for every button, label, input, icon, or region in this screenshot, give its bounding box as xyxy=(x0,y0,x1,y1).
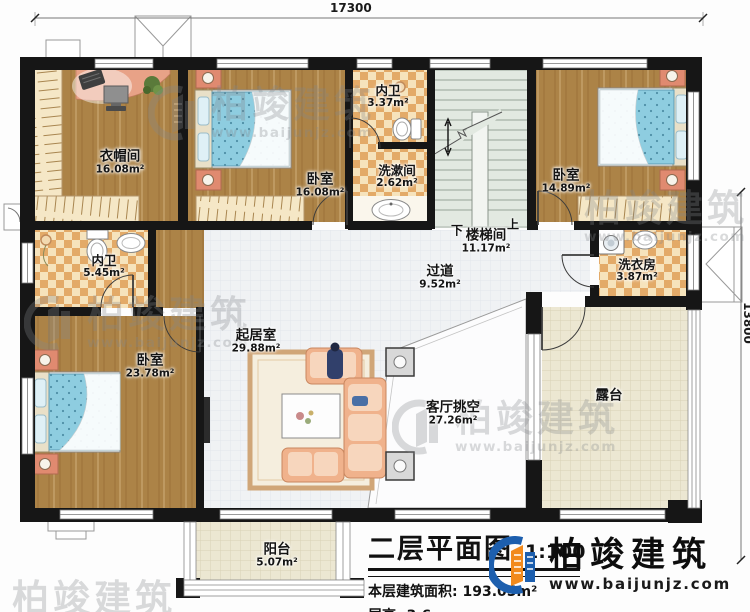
floors xyxy=(28,64,688,580)
room-label-terrace: 露台 xyxy=(596,388,623,403)
room-label-laundry: 洗衣房3.87m² xyxy=(616,258,657,284)
dimension-width: 17300 xyxy=(330,1,372,15)
room-label-balcony: 阳台5.07m² xyxy=(256,543,297,570)
shower-icon xyxy=(41,235,51,245)
sink-icon xyxy=(633,231,657,249)
floor-plan-page: 17300 13800 衣帽间16.08m² 卧室16.08m² 内卫3.37m… xyxy=(0,0,750,612)
room-label-bedroom-top: 卧室16.08m² xyxy=(296,173,345,200)
toilet-tank xyxy=(411,119,421,139)
brand-logo: 柏竣建筑 www.baijunjz.com xyxy=(489,536,731,594)
room-label-bedroom-right: 卧室14.89m² xyxy=(542,169,591,196)
toilet-tank xyxy=(87,230,108,239)
stair-down-label: 下 xyxy=(451,222,463,239)
room-label-bath-top: 内卫3.37m² xyxy=(367,84,408,110)
room-label-void: 客厅挑空27.26m² xyxy=(426,401,480,428)
floor-height-line: 层高: 3.6m xyxy=(368,605,585,612)
right-bay-roof xyxy=(700,227,742,302)
room-label-cloakroom: 衣帽间16.08m² xyxy=(96,150,145,177)
dimension-height: 13800 xyxy=(741,302,750,344)
brand-logo-icon xyxy=(489,536,543,594)
room-label-living: 起居室29.88m² xyxy=(232,329,281,356)
room-label-stairwell: 楼梯间11.17m² xyxy=(462,229,511,256)
stair-up-label: 上 xyxy=(507,216,519,233)
tv-icon xyxy=(204,397,210,443)
brand-name: 柏竣建筑 xyxy=(549,538,731,572)
washroom-fixtures xyxy=(372,200,410,221)
toilet-icon xyxy=(393,118,411,140)
coffee-table xyxy=(282,394,340,438)
roof-vent xyxy=(135,16,191,62)
sink-icon xyxy=(117,234,145,253)
room-label-washroom: 洗漱间2.62m² xyxy=(376,164,417,190)
room-label-bedroom-bottom: 卧室23.78m² xyxy=(126,354,175,381)
person xyxy=(327,349,343,379)
monitor-icon xyxy=(104,86,128,111)
brand-website: www.baijunjz.com xyxy=(549,575,731,593)
room-label-corridor: 过道9.52m² xyxy=(419,265,460,292)
room-label-bath-left: 内卫5.45m² xyxy=(83,254,124,280)
